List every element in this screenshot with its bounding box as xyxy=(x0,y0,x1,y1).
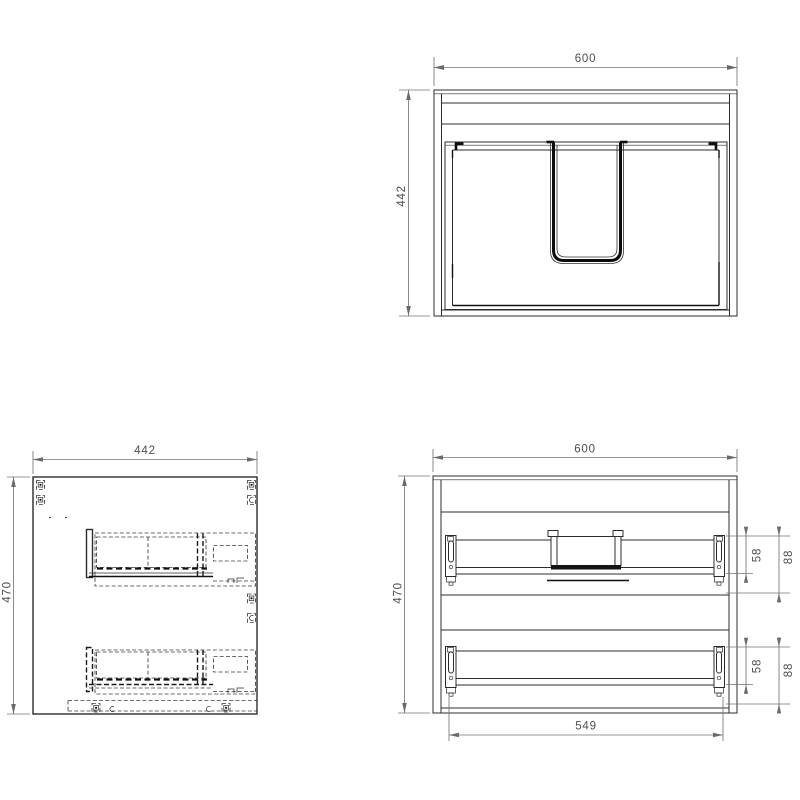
slide-bracket-left xyxy=(446,536,457,586)
cam-symbol-2 xyxy=(207,706,211,711)
technical-drawing: 600 442 xyxy=(0,0,800,800)
upper-drawer-rail xyxy=(446,531,725,586)
cam-fitting-mid-right-2 xyxy=(248,614,256,623)
front-view-handle-cutout xyxy=(547,142,628,264)
slide-bracket-detail xyxy=(228,688,244,693)
handle-cutout-back xyxy=(547,531,629,581)
internal-view-carcass xyxy=(433,476,737,713)
upper-rail-bottom-offset-label: 88 xyxy=(783,550,795,564)
rail-span-dimension: 549 xyxy=(449,697,723,741)
internal-height-dimension: 470 xyxy=(393,476,431,713)
internal-height-label: 470 xyxy=(393,582,405,604)
front-view-door xyxy=(445,142,727,310)
front-view-carcass xyxy=(434,90,737,316)
internal-width-dimension: 600 xyxy=(433,444,737,473)
cam-fitting-top-left-1 xyxy=(37,481,45,490)
internal-width-label: 600 xyxy=(574,444,596,456)
lower-rail-top-offset-label: 58 xyxy=(752,659,764,673)
internal-front-view: 600 470 549 58 xyxy=(393,444,796,742)
dowel-mark-2 xyxy=(65,517,67,519)
slide-bracket-left xyxy=(446,647,457,697)
cam-fitting-top-right-2 xyxy=(248,496,256,505)
lower-rail-bottom-offset-label: 88 xyxy=(783,663,795,677)
side-view-bottom-rail xyxy=(68,701,257,713)
upper-rail-offset-dimensions: 58 88 xyxy=(726,526,795,603)
front-height-label: 442 xyxy=(396,185,408,207)
rail-span-label: 549 xyxy=(575,721,597,733)
side-view: 442 470 xyxy=(2,445,258,714)
slide-bracket-detail xyxy=(228,578,244,583)
cam-fitting-top-left-2 xyxy=(37,496,45,505)
front-view: 600 442 xyxy=(396,53,737,316)
cam-fitting-mid-right-1 xyxy=(248,594,256,603)
door-clip-left xyxy=(456,144,464,151)
slide-bracket-right xyxy=(714,536,725,586)
upper-rail-top-offset-label: 58 xyxy=(752,548,764,562)
side-view-lower-drawer xyxy=(87,648,256,695)
side-view-height-dimension: 470 xyxy=(2,477,31,714)
side-view-upper-drawer xyxy=(87,530,256,587)
slide-bracket-right xyxy=(714,647,725,697)
lower-rail-offset-dimensions: 58 88 xyxy=(726,637,795,714)
dowel-mark-1 xyxy=(49,517,51,519)
side-view-width-dimension: 442 xyxy=(33,445,257,474)
side-height-label: 470 xyxy=(2,581,14,603)
cam-fitting-top-right-1 xyxy=(248,481,256,490)
front-view-width-dimension: 600 xyxy=(434,53,737,86)
side-width-label: 442 xyxy=(134,445,156,457)
door-clip-right xyxy=(709,144,717,151)
front-view-height-dimension: 442 xyxy=(396,90,430,316)
lower-drawer-rail xyxy=(446,647,725,697)
front-width-label: 600 xyxy=(575,53,597,65)
